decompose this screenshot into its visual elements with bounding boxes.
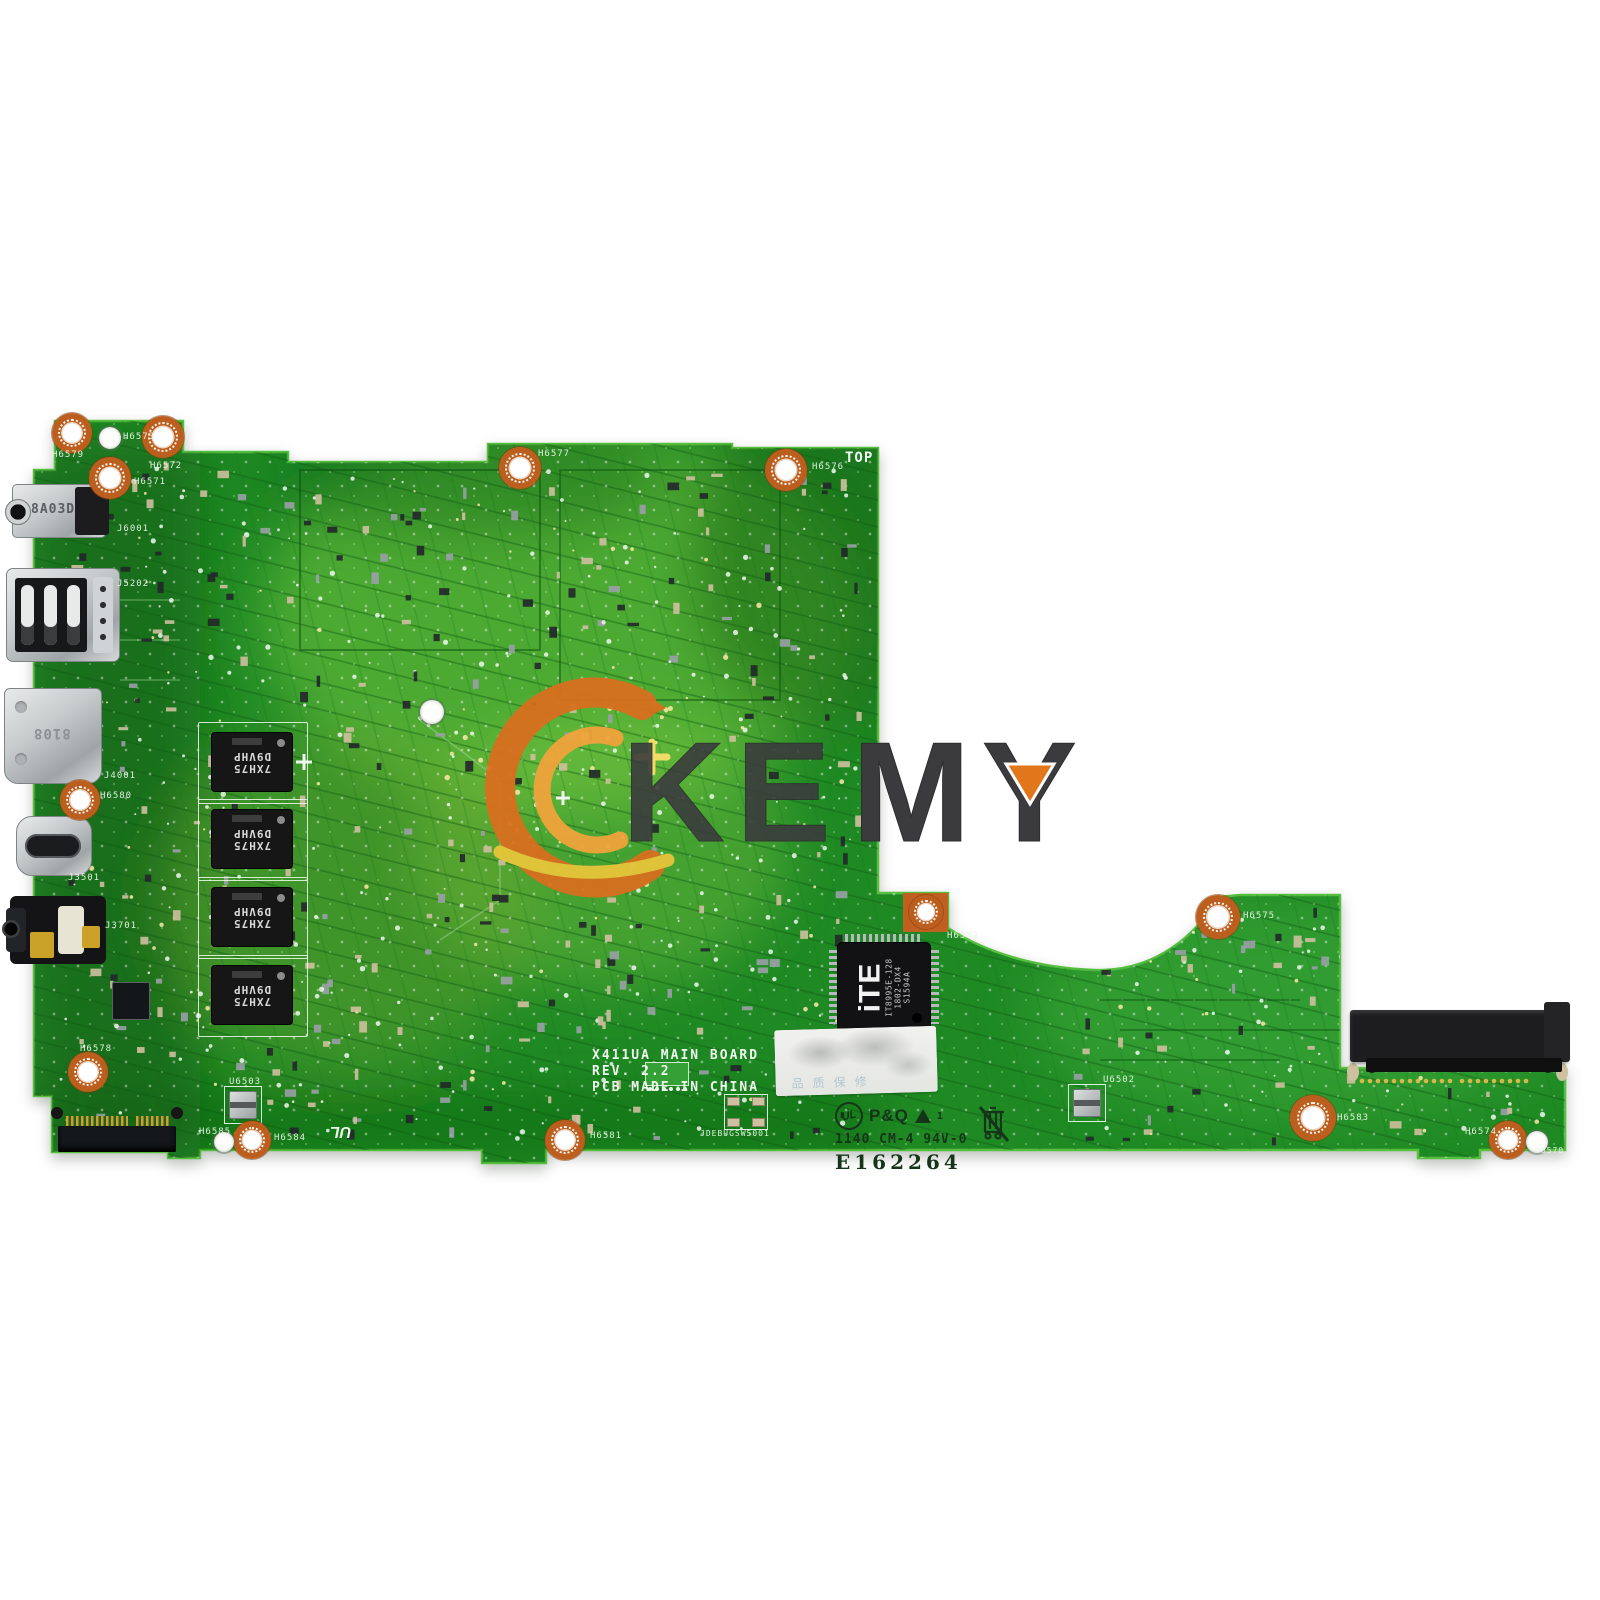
component-u6502-body <box>1073 1089 1101 1117</box>
refdes-h6584: H6584 <box>274 1133 306 1143</box>
screw-hole-h6575 <box>1196 895 1240 939</box>
refdes-h6578: H6578 <box>80 1044 112 1054</box>
watermark-letter-k: K <box>622 718 725 868</box>
hdmi-port: 8108 <box>4 688 102 784</box>
ram-pin1-dot <box>277 816 285 824</box>
dc-jack-barrel <box>5 499 31 525</box>
audio-jack-gold-pad <box>30 932 54 958</box>
ram-label-strip <box>232 971 262 978</box>
refdes-h6579: H6579 <box>52 450 84 460</box>
m2-gold-pins <box>66 1116 128 1126</box>
ec-chip-marking-line1: IT8995E-128 <box>885 944 894 1030</box>
screw-hole-h6579 <box>52 413 92 453</box>
refdes-h6572: H6572 <box>150 461 182 471</box>
usb-a-contact <box>21 585 34 645</box>
screw-hole-h6578 <box>68 1052 108 1092</box>
usb-a-port <box>6 568 120 662</box>
sata-connector <box>1350 1010 1568 1062</box>
usb-a-contact <box>67 585 80 645</box>
switch-pad <box>727 1097 740 1106</box>
ul-logo: UL <box>832 1099 865 1132</box>
triangle-icon <box>915 1109 931 1123</box>
refdes-jdebugsw5001: JDEBUGSW5001 <box>700 1129 770 1139</box>
refdes-j3501: J3501 <box>68 873 100 883</box>
ram-marking-line2: D9VHP <box>233 983 271 996</box>
refdes-h6583: H6583 <box>1337 1113 1369 1123</box>
e-number: E162264 <box>835 1150 1005 1174</box>
refdes-u6502: U6502 <box>1103 1075 1135 1085</box>
ram-pin1-dot <box>277 894 285 902</box>
refdes-h6571: H6571 <box>134 477 166 487</box>
refdes-j5202: J5202 <box>117 579 149 589</box>
board-model-silkscreen: X411UA MAIN BOARD REV. 2.2 PCB MADE IN C… <box>592 1048 759 1096</box>
debug-switch-footprint <box>724 1094 768 1130</box>
ram-chip-2: 7XH75 D9VHP <box>212 810 292 868</box>
refdes-h6577: H6577 <box>538 449 570 459</box>
refdes-h6585: H6585 <box>199 1127 231 1137</box>
ram-marking-line2: D9VHP <box>233 750 271 763</box>
watermark-letter-e: E <box>736 718 831 868</box>
refdes-h6570: H6570 <box>1535 1146 1564 1156</box>
hdmi-dimple <box>15 701 27 713</box>
sata-connector-lip <box>1544 1002 1570 1062</box>
sata-connector-base <box>1366 1058 1562 1072</box>
motherboard-photo: 8A03D 8108 7XH75 D9VHP 7XH75 D9VHP <box>0 0 1600 1600</box>
screw-hole-h6580 <box>60 780 100 820</box>
ram-label-strip <box>232 738 262 745</box>
component-u6503 <box>224 1086 262 1124</box>
switch-pad <box>727 1118 740 1127</box>
ram-pin1-dot <box>277 739 285 747</box>
screw-hole-h6571 <box>89 457 131 499</box>
ram-label-strip <box>232 815 262 822</box>
ec-chip-pins-right <box>929 950 939 1024</box>
usb-a-contact <box>44 585 57 645</box>
ram-chip-4: 7XH75 D9VHP <box>212 966 292 1024</box>
small-qfn-chip <box>112 982 150 1020</box>
ram-marking-line1: 7XH75 <box>233 995 271 1008</box>
refdes-j6001: J6001 <box>117 524 149 534</box>
refdes-h6576: H6576 <box>812 462 844 472</box>
switch-pad <box>752 1118 765 1127</box>
watermark-y-triangle-icon <box>998 758 1062 810</box>
m2-gold-pins <box>136 1116 170 1126</box>
watermark-letter-m: M <box>852 718 970 868</box>
ul-logo-silkscreen: UL <box>330 1122 351 1140</box>
board-model-line2: REV. 2.2 <box>592 1064 759 1080</box>
screw-hole-h6577 <box>499 447 541 489</box>
refdes-h6574: H6574 <box>1465 1127 1497 1137</box>
audio-jack-port <box>10 896 106 964</box>
refdes-j3701: J3701 <box>105 921 137 931</box>
audio-jack-gold-pad <box>82 926 100 948</box>
ram-marking-line1: 7XH75 <box>233 917 271 930</box>
refdes-h6581: H6581 <box>590 1131 622 1141</box>
weee-bin-icon <box>977 1104 1011 1146</box>
ram-pin1-dot <box>277 972 285 980</box>
ec-chip-logo: iTE <box>857 944 885 1030</box>
dc-jack-marking: 8A03D <box>31 502 75 517</box>
hole-h6573 <box>99 427 121 449</box>
sticker-faint-text: 品质保修 <box>791 1072 875 1091</box>
usb-c-slot <box>25 834 81 858</box>
refdes-j4001: J4001 <box>104 771 136 781</box>
refdes-u6503: U6503 <box>229 1077 261 1087</box>
refdes-h6573: H6573 <box>123 432 155 442</box>
refdes-h6575: H6575 <box>1243 911 1275 921</box>
audio-jack-cream-body <box>58 906 84 954</box>
screw-hole-h6581 <box>545 1120 585 1160</box>
screw-hole-h6576 <box>765 449 807 491</box>
hdmi-dimple <box>15 753 27 765</box>
usb-a-pin-column <box>93 577 113 653</box>
screw-hole-h6584 <box>233 1121 271 1159</box>
pq-marking: P&Q <box>869 1106 909 1126</box>
screw-hole-copper-tab <box>909 895 943 929</box>
triangle-note: 1 <box>937 1111 943 1122</box>
refdes-h6580: H6580 <box>100 791 132 801</box>
ram-marking-line2: D9VHP <box>233 827 271 840</box>
ram-label-strip <box>232 893 262 900</box>
ec-chip-pin1-dot <box>912 1013 922 1023</box>
switch-pad <box>752 1097 765 1106</box>
hdmi-marking: 8108 <box>33 725 71 741</box>
screw-hole-h6583 <box>1290 1095 1336 1141</box>
board-model-line1: X411UA MAIN BOARD <box>592 1048 759 1064</box>
ec-chip-marking-line2: 1802-DX4 <box>894 944 903 1030</box>
dc-jack-port: 8A03D <box>12 484 106 538</box>
ram-marking-line1: 7XH75 <box>233 762 271 775</box>
ec-chip-marking-line3: S1594A <box>903 944 912 1030</box>
certification-block: UL P&Q 1 1140 CM-4 94V-0 E162264 <box>835 1102 1005 1174</box>
audio-jack-hole <box>2 920 20 938</box>
ram-marking-line1: 7XH75 <box>233 839 271 852</box>
m2-slot <box>58 1126 176 1152</box>
component-u6503-body <box>229 1091 257 1119</box>
board-model-line3: PCB MADE IN CHINA <box>592 1080 759 1096</box>
ram-chip-1: 7XH75 D9VHP <box>212 733 292 791</box>
refdes-h6582: H6582 <box>947 931 979 941</box>
usb-c-port <box>16 816 92 876</box>
ec-chip: iTE IT8995E-128 1802-DX4 S1594A <box>838 943 930 1031</box>
top-side-marking: TOP <box>845 450 873 466</box>
component-u6502 <box>1068 1084 1106 1122</box>
ram-chip-3: 7XH75 D9VHP <box>212 888 292 946</box>
ram-marking-line2: D9VHP <box>233 905 271 918</box>
warranty-sticker: 品质保修 <box>774 1026 938 1096</box>
